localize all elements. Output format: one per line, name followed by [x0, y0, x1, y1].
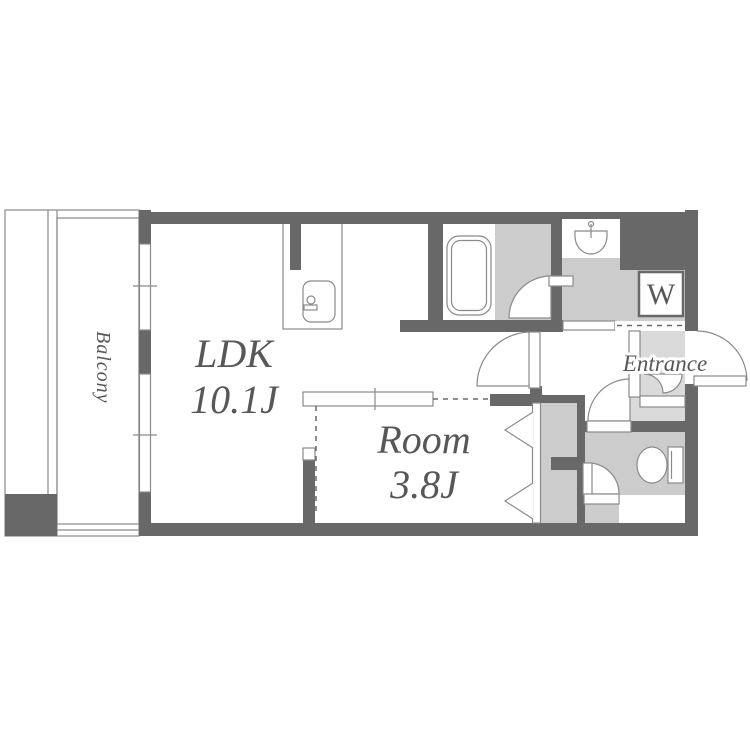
closet-folding-door-top — [505, 412, 533, 448]
closet-folding-door-bottom — [505, 483, 533, 519]
wall-bottom — [139, 523, 698, 536]
balcony-window-lower — [140, 374, 151, 492]
toilet-tank — [668, 447, 683, 483]
toilet-door-swing — [588, 379, 630, 421]
wall-bath-bottom — [400, 320, 563, 332]
ldk-label: LDK — [194, 331, 275, 376]
ldk-size-label: 10.1J — [190, 377, 280, 422]
wall-window-pillar-mid — [139, 330, 151, 374]
closet-door-track — [533, 403, 541, 523]
entrance-label: Entrance — [622, 351, 707, 376]
balcony-structure — [5, 210, 139, 536]
wall-room-top-right — [490, 394, 533, 406]
room-label: Room — [376, 417, 470, 462]
bathroom-door-leaf — [549, 276, 573, 286]
balcony-label: Balcony — [92, 331, 114, 404]
room-partition-end-box — [303, 448, 315, 460]
room-size-label: 3.8J — [389, 462, 460, 507]
balcony-window-upper — [140, 244, 151, 330]
wall-bath-washroom — [551, 224, 562, 320]
floorplan-canvas: Balcony LDK 10.1J Room 3.8J Entrance W — [0, 0, 750, 750]
balcony-outer-rail — [5, 210, 139, 536]
room-partition-sliding-door — [303, 392, 433, 406]
toilet-inner-door-leaf — [583, 463, 592, 495]
wall-right-lower — [685, 384, 698, 536]
toilet-niche-floor — [585, 504, 619, 523]
wall-topright-block — [620, 212, 685, 270]
wall-right-upper — [685, 210, 698, 331]
floorplan-drawing: Balcony LDK 10.1J Room 3.8J Entrance W — [0, 0, 750, 750]
kitchen-drain — [304, 305, 317, 310]
bathtub-outer — [447, 236, 491, 315]
wall-kitchen-stub — [290, 224, 301, 270]
washroom-sliding-door — [563, 321, 615, 330]
toilet-niche-door — [584, 494, 619, 504]
washer-label: W — [647, 278, 676, 311]
front-door-leaf — [694, 376, 746, 386]
wall-hall-bottom — [540, 395, 585, 403]
wall-room-left-stub — [303, 460, 315, 523]
wall-window-pillar-top — [139, 210, 151, 244]
hallway-door-swing — [477, 332, 531, 386]
hallway-door-leaf — [529, 332, 540, 388]
entrance-step — [640, 396, 685, 407]
toilet-bowl — [637, 447, 667, 483]
toilet-door-leaf — [587, 421, 631, 432]
wall-closet-stub — [551, 457, 585, 470]
wall-balcony-end-block — [5, 494, 57, 536]
wall-bath-left — [428, 224, 443, 332]
